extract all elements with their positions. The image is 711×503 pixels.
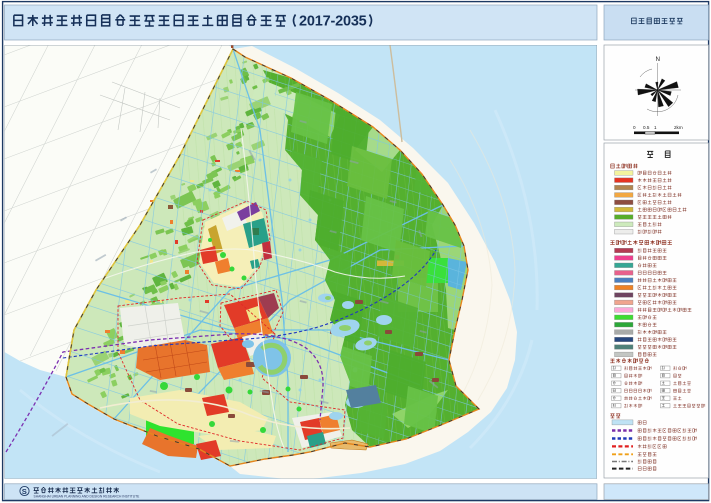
svg-text:2017-2035: 2017-2035: [299, 14, 367, 30]
svg-text:N: N: [656, 56, 660, 63]
svg-text:1: 1: [654, 125, 657, 130]
svg-text:0.5: 0.5: [643, 125, 650, 130]
svg-text:0: 0: [633, 125, 636, 130]
svg-text:2km: 2km: [674, 125, 683, 130]
svg-text:S: S: [22, 487, 27, 496]
svg-text:SHANGHAI URBAN PLANNING AND DE: SHANGHAI URBAN PLANNING AND DESIGN RESEA…: [34, 495, 141, 499]
